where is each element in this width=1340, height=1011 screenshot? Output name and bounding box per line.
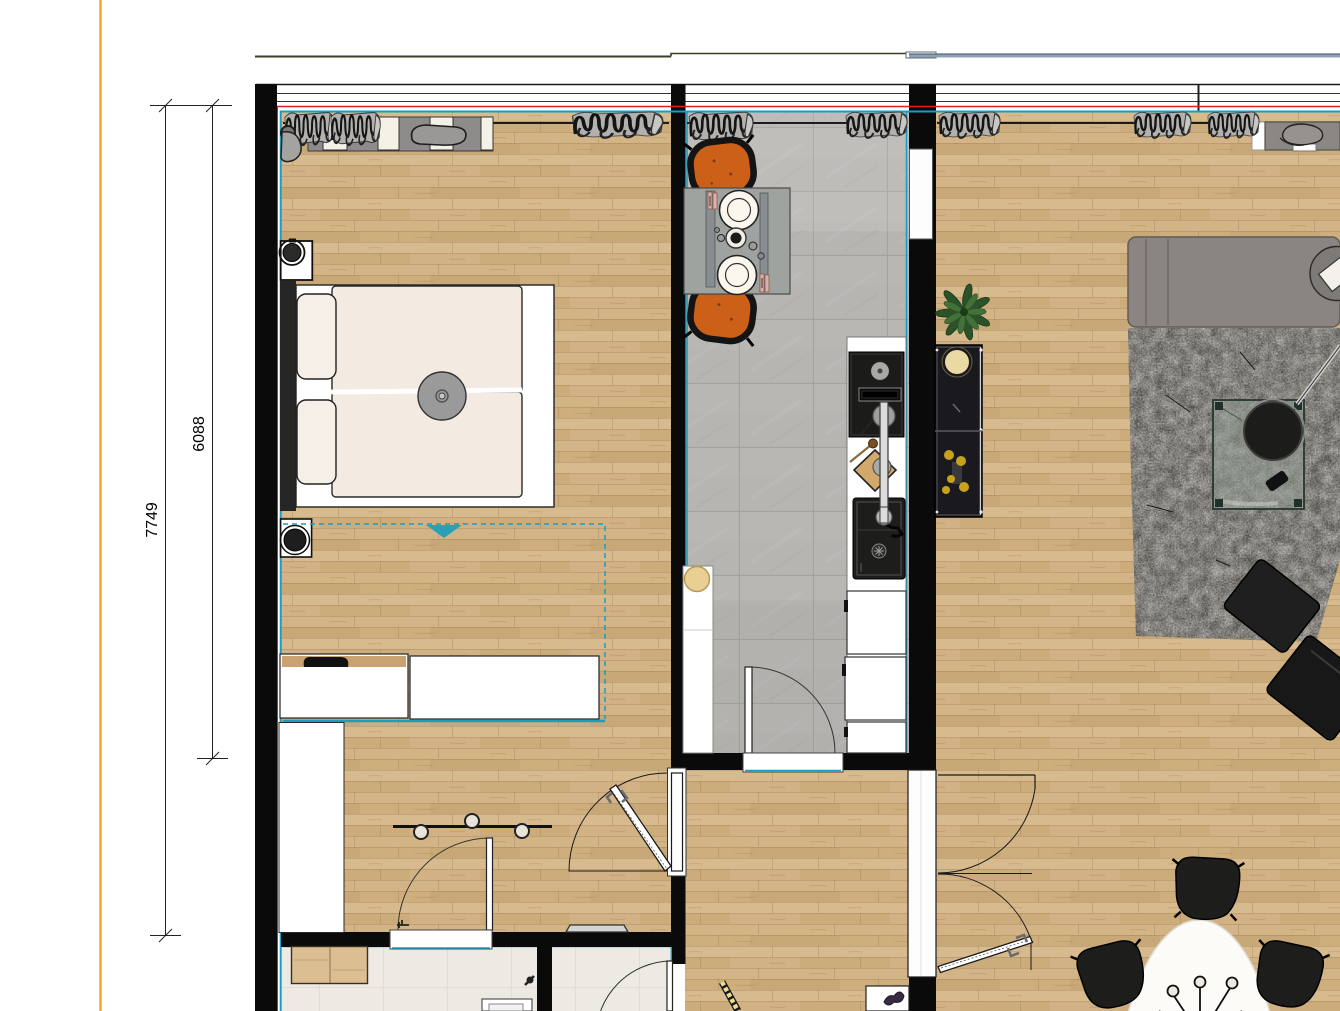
svg-text:7749: 7749 (144, 502, 161, 538)
svg-text:6088: 6088 (191, 416, 208, 452)
